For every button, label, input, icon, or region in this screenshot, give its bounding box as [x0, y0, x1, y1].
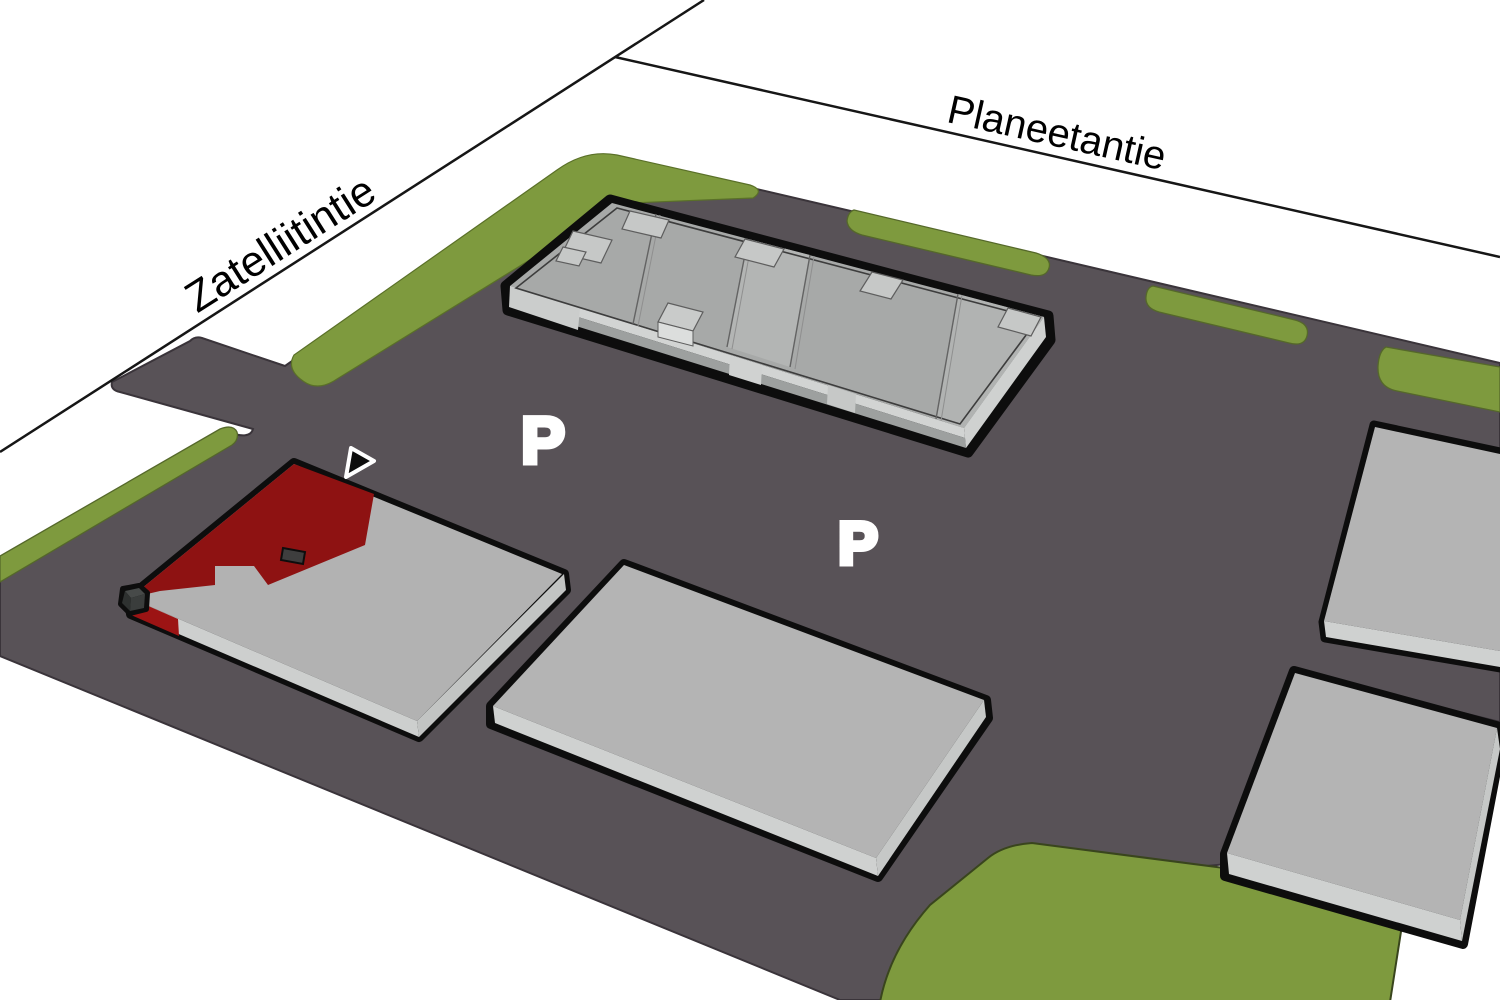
svg-text:P: P: [521, 403, 565, 477]
svg-text:P: P: [838, 510, 878, 577]
